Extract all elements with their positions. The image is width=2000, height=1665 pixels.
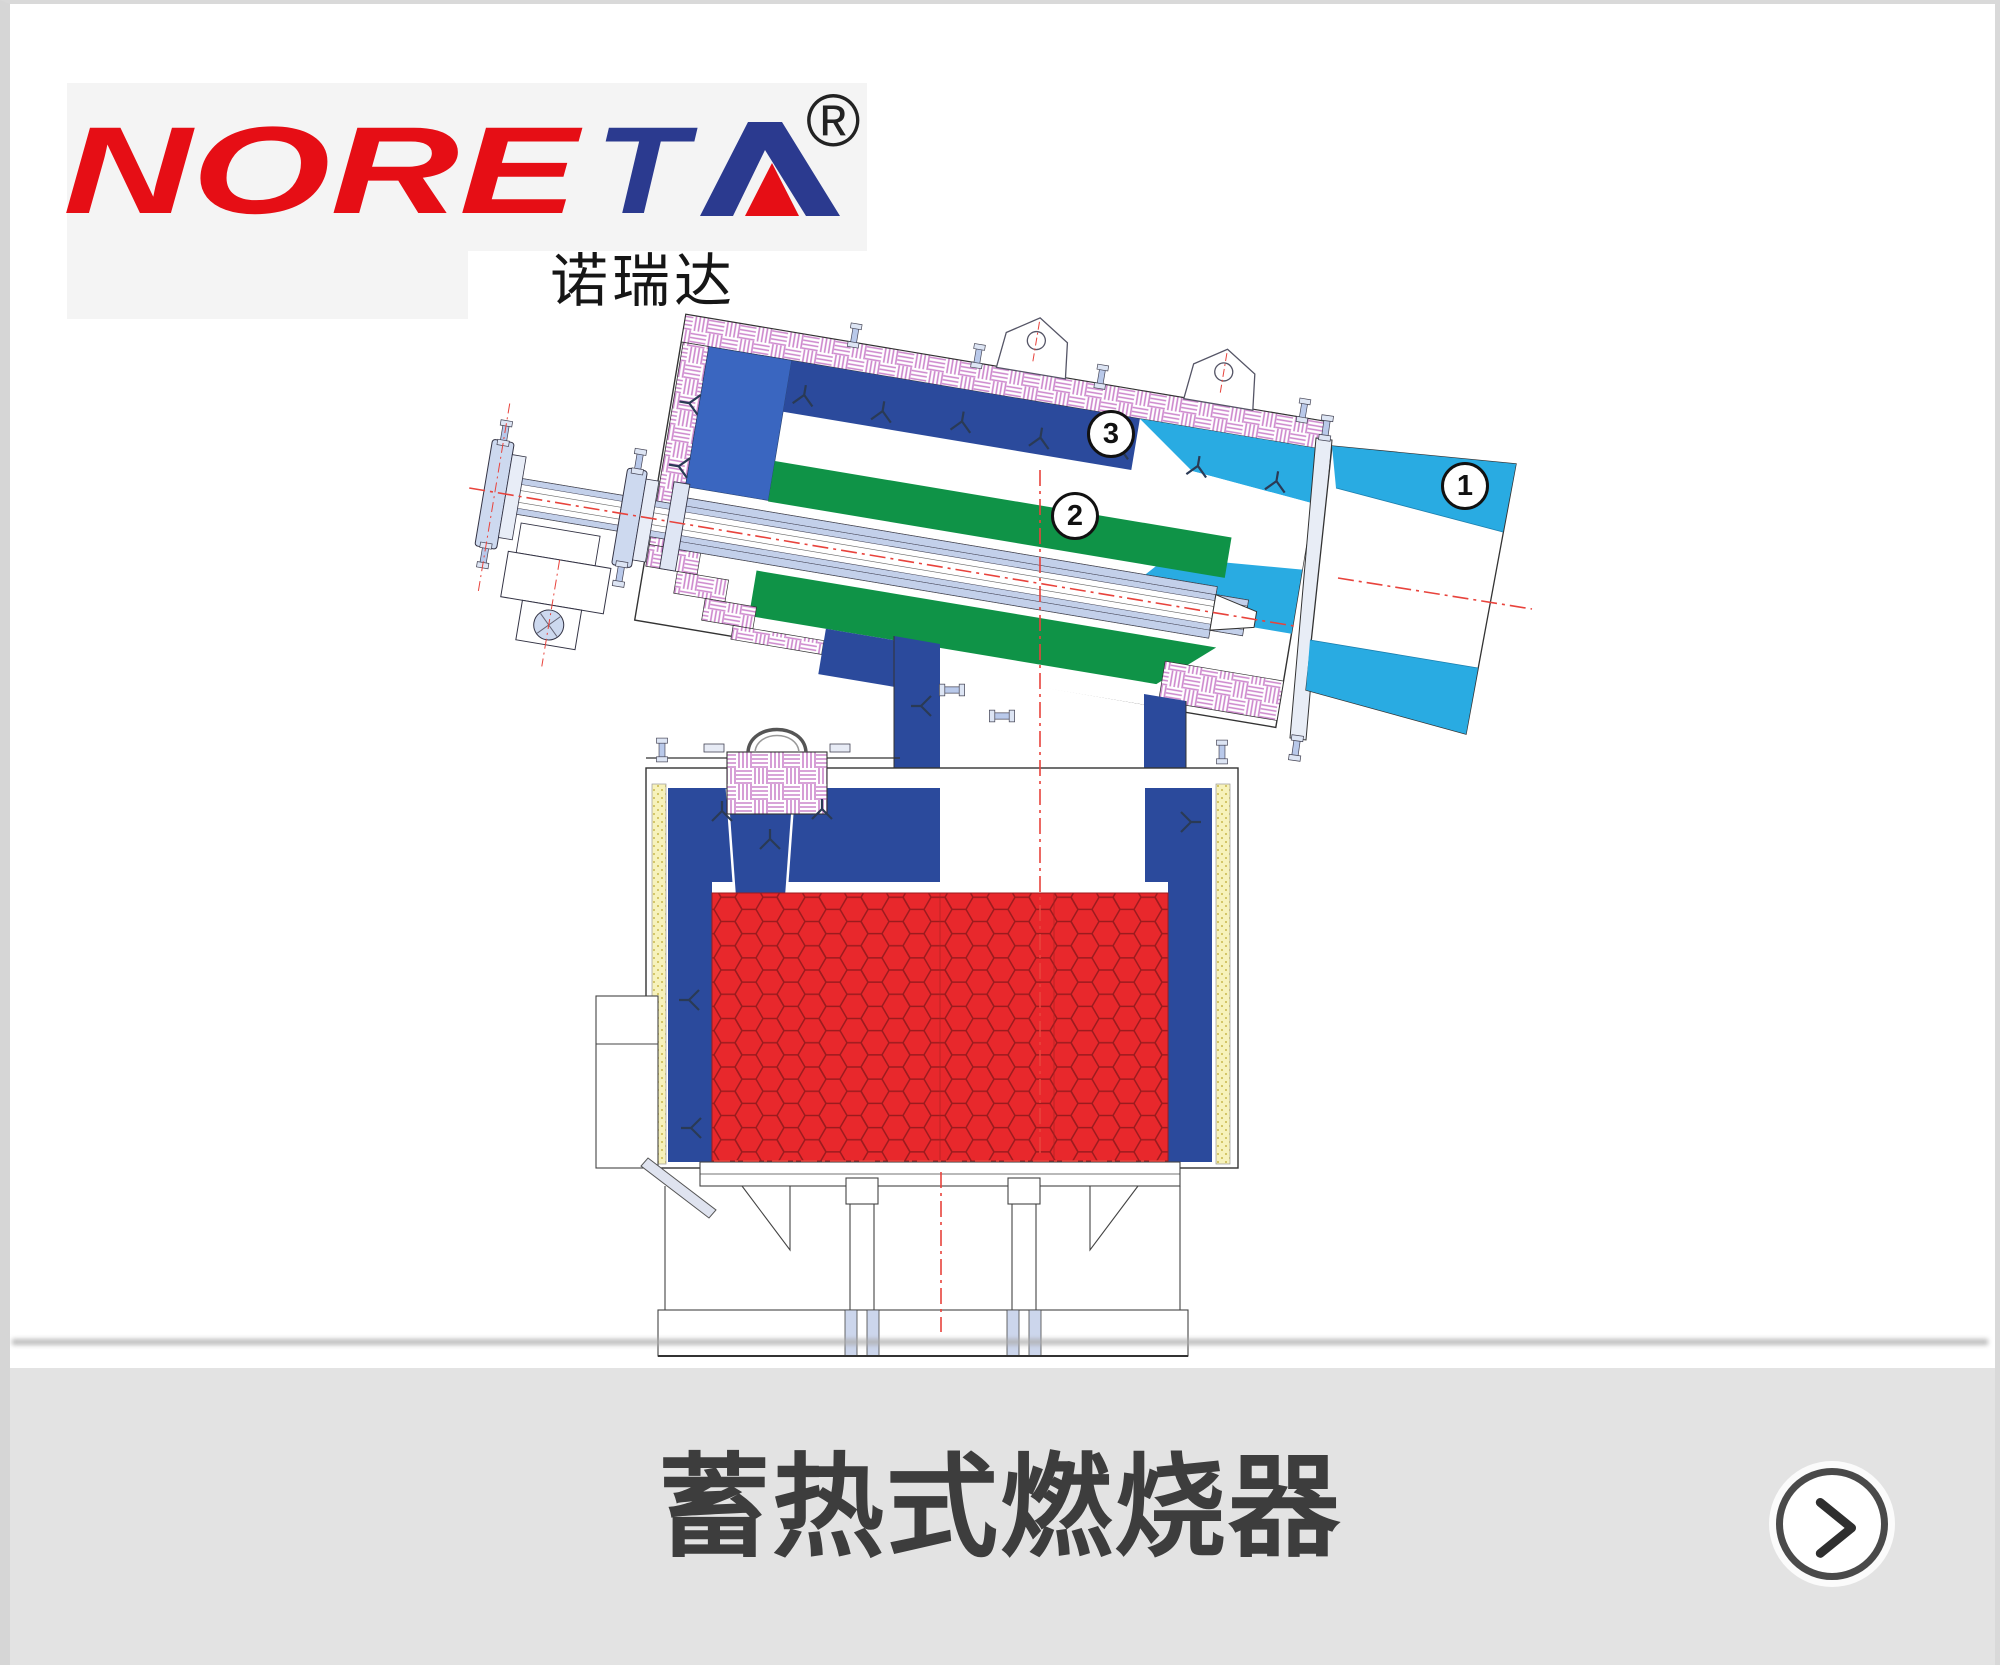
registered-mark: ®	[806, 79, 861, 162]
footer-bar: 蓄热式燃烧器	[0, 1368, 2000, 1665]
burner-housing-assembly	[442, 230, 1341, 788]
next-arrow-icon	[1783, 1475, 1881, 1573]
divider-shadow	[12, 1339, 1988, 1345]
part-label-2: 2	[1051, 492, 1099, 540]
part-label-1: 1	[1441, 462, 1489, 510]
burner-diagram-svg	[440, 230, 1580, 1380]
side-duct	[596, 996, 658, 1168]
logo-red-text: NORE	[63, 102, 583, 240]
regenerator-box	[596, 730, 1238, 1219]
support-frame	[658, 1162, 1188, 1356]
inspection-lid	[727, 752, 827, 814]
logo-blue-letter: T	[595, 102, 698, 240]
product-title: 蓄热式燃烧器	[0, 1452, 2000, 1564]
part-label-3: 3	[1087, 410, 1135, 458]
lid-handle	[748, 730, 806, 753]
page: { "logo": { "wordmark_red": "NORE", "wor…	[0, 0, 2000, 1665]
next-button[interactable]	[1776, 1468, 1888, 1580]
